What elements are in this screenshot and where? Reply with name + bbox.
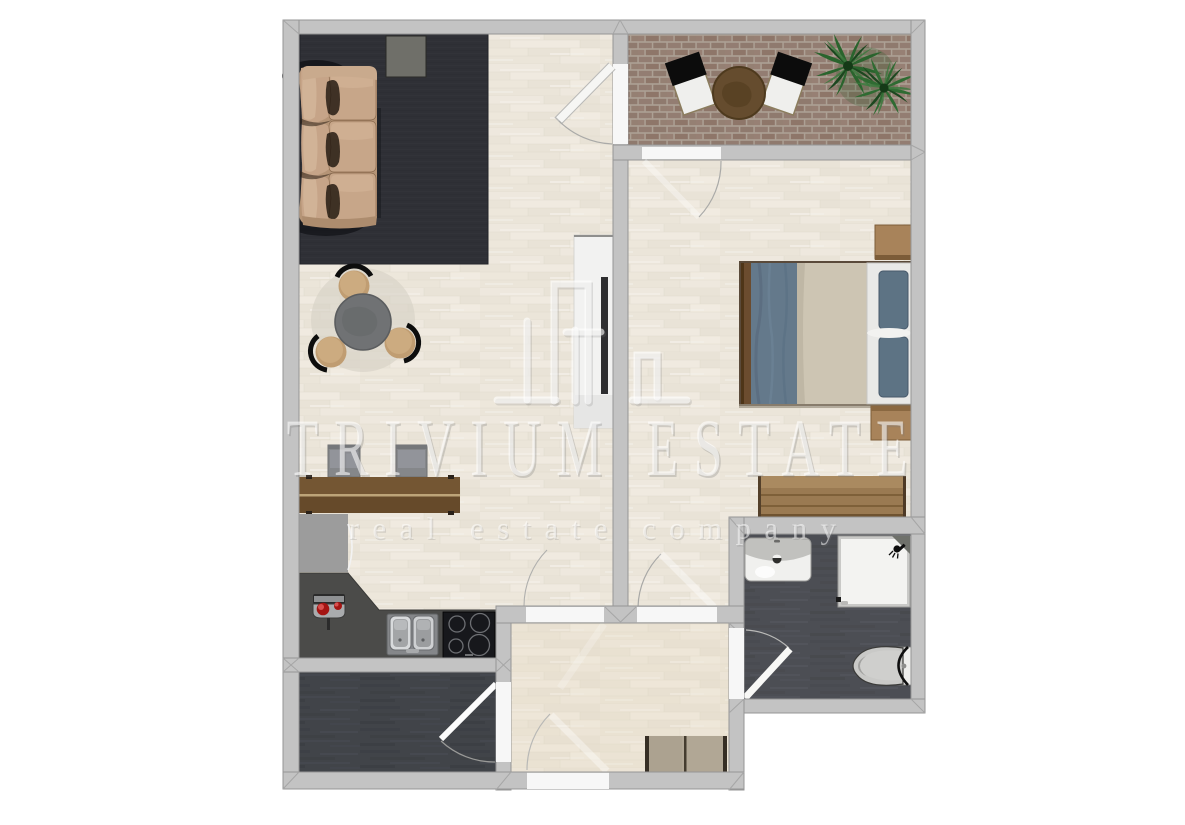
svg-text:real estate company: real estate company bbox=[349, 511, 850, 546]
svg-text:TRIVIUM ESTATE: TRIVIUM ESTATE bbox=[287, 402, 924, 493]
